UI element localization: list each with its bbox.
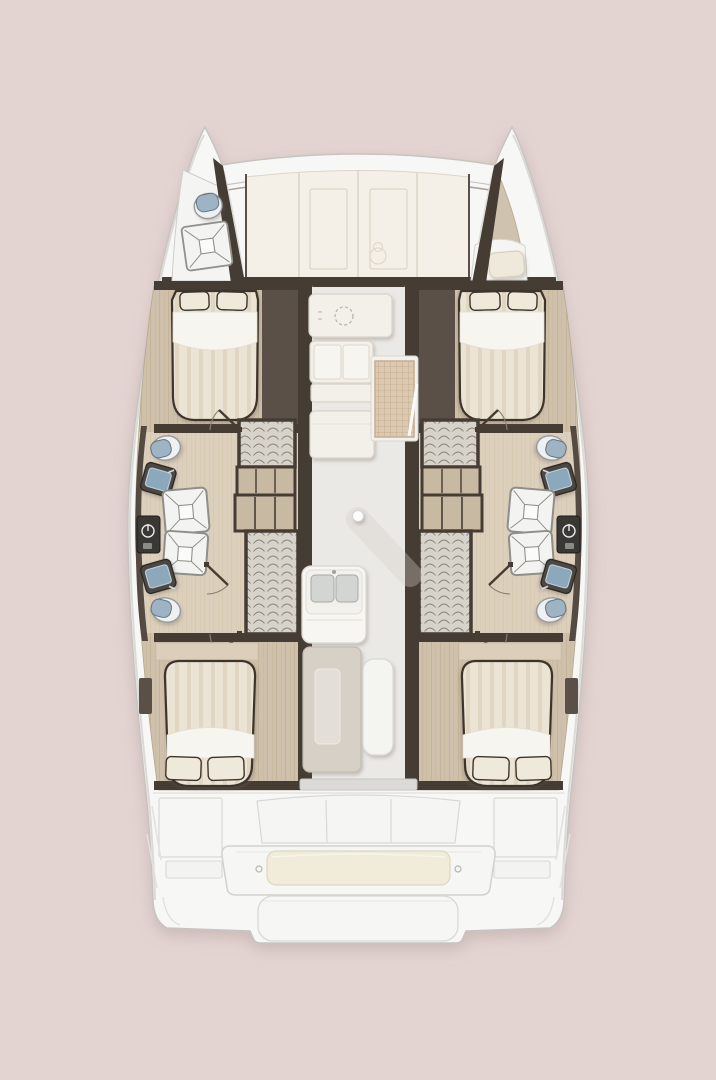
port-hull bbox=[135, 281, 312, 790]
island-sink-unit bbox=[302, 566, 366, 643]
drawer-unit bbox=[235, 495, 295, 531]
faucet bbox=[332, 570, 336, 574]
hanging-locker bbox=[239, 420, 295, 467]
cockpit-locker-left bbox=[166, 861, 222, 878]
shower-fixture bbox=[162, 487, 210, 535]
cockpit-side-panel-left bbox=[159, 798, 222, 857]
shelf-unit bbox=[237, 467, 295, 495]
sheet-fold bbox=[167, 728, 254, 759]
galley-sink-counter bbox=[309, 294, 392, 337]
wardrobe-column bbox=[235, 420, 298, 634]
cockpit-bench bbox=[222, 846, 495, 895]
swim-steps bbox=[258, 896, 458, 941]
cooktop-counter bbox=[310, 341, 373, 383]
starboard-hull bbox=[405, 281, 582, 790]
forward-cabin-bed bbox=[172, 291, 258, 420]
support-pole bbox=[353, 511, 364, 522]
cabin-wall-forward bbox=[154, 281, 312, 290]
pillow bbox=[180, 291, 210, 310]
berth-cushion bbox=[488, 250, 525, 278]
washing-machine bbox=[137, 516, 160, 553]
shower-fixture bbox=[181, 221, 233, 271]
sheet-fold bbox=[173, 312, 257, 350]
companionway-steps bbox=[371, 356, 418, 441]
cockpit-window-band bbox=[257, 795, 460, 843]
cockpit-side-panel-right bbox=[494, 798, 557, 857]
sink-bowl bbox=[336, 575, 358, 602]
floorplan-svg bbox=[0, 0, 716, 1080]
saloon-galley bbox=[300, 287, 418, 790]
hanging-locker bbox=[246, 531, 298, 634]
aft-cabin-bed bbox=[165, 661, 255, 786]
forward-cabin-wardrobe-block bbox=[262, 290, 298, 424]
catamaran-floorplan bbox=[128, 127, 589, 943]
outboard-locker bbox=[139, 678, 152, 714]
pillow bbox=[217, 291, 248, 310]
drawer-counter bbox=[311, 384, 373, 402]
dining-table bbox=[303, 647, 361, 772]
floorplan-canvas bbox=[0, 0, 716, 1080]
pillow bbox=[208, 756, 245, 780]
headboard-shelf bbox=[156, 643, 258, 660]
refrigerator-counter bbox=[310, 411, 374, 458]
pillow bbox=[166, 756, 202, 780]
cockpit-locker-right bbox=[494, 861, 550, 878]
patio-door bbox=[300, 779, 417, 790]
sink-bowl bbox=[311, 575, 334, 602]
saloon-bench bbox=[363, 659, 393, 755]
